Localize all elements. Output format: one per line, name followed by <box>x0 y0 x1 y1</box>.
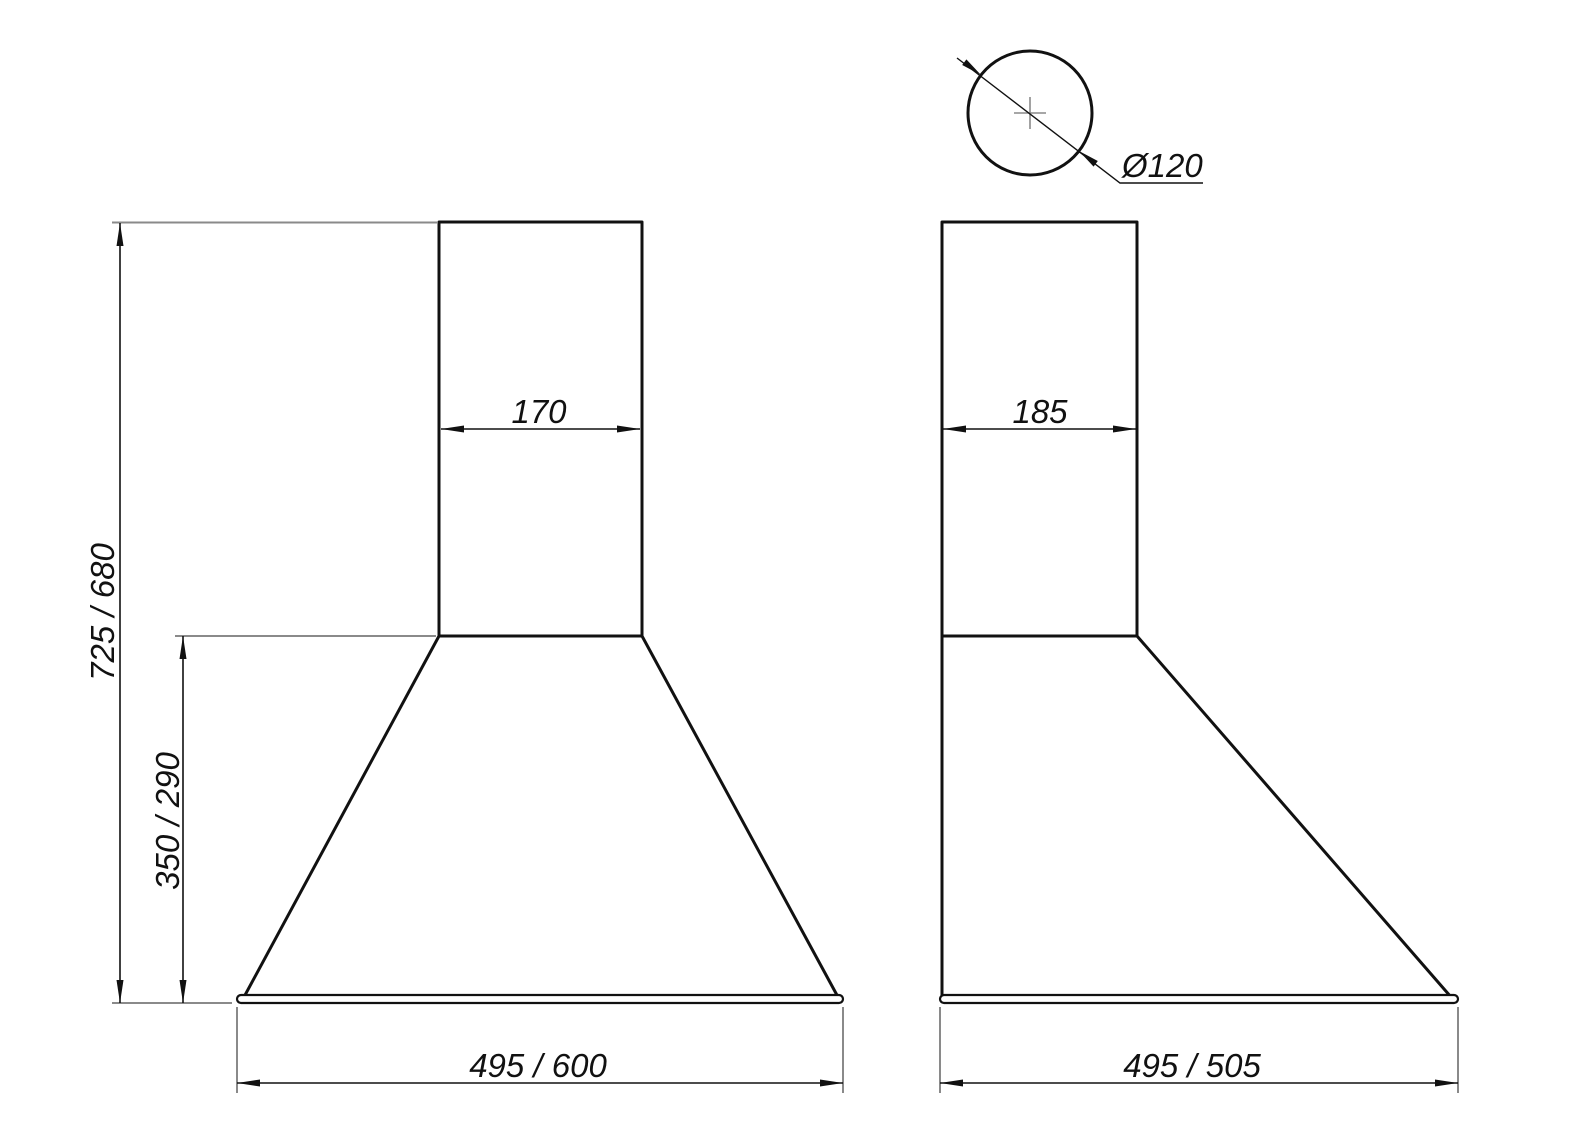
arrow-down-icon <box>117 980 124 1003</box>
front-hood-left-slope <box>244 636 439 997</box>
arrow-up-icon <box>180 636 187 659</box>
arrow-right-icon <box>617 426 640 433</box>
base-width-label: 495 / 600 <box>469 1047 607 1084</box>
dim-base-depth: 495 / 505 <box>940 1047 1458 1087</box>
center-cross-icon <box>1014 97 1046 129</box>
cooker-hood-dimension-drawing: Ø120 725 / 680 350 / 290 170 <box>0 0 1588 1123</box>
arrow-down-icon <box>180 980 187 1003</box>
arrow-up-icon <box>117 223 124 246</box>
front-view <box>237 222 843 1003</box>
front-hood-right-slope <box>642 636 838 997</box>
diameter-arrow-icon <box>1079 151 1098 167</box>
hood-height-label: 350 / 290 <box>149 752 186 890</box>
chimney-width-label: 170 <box>511 393 567 430</box>
extension-lines <box>112 223 1458 1094</box>
arrow-right-icon <box>1435 1080 1458 1087</box>
front-hood-bottom-rim <box>237 995 843 1003</box>
chimney-depth-label: 185 <box>1012 393 1068 430</box>
outlet-detail: Ø120 <box>957 51 1203 184</box>
outlet-diameter-label: Ø120 <box>1121 147 1203 184</box>
dim-chimney-depth: 185 <box>943 393 1136 433</box>
side-hood-bottom-rim <box>940 995 1458 1003</box>
arrow-left-icon <box>943 426 966 433</box>
arrow-left-icon <box>237 1080 260 1087</box>
dim-total-height: 725 / 680 <box>84 223 124 1003</box>
side-view <box>940 222 1458 1003</box>
drawing-canvas: Ø120 725 / 680 350 / 290 170 <box>0 0 1588 1123</box>
dim-hood-height: 350 / 290 <box>149 636 187 1003</box>
total-height-label: 725 / 680 <box>84 543 121 681</box>
side-body-outline <box>942 222 1451 997</box>
arrow-left-icon <box>940 1080 963 1087</box>
diameter-arrow-icon <box>962 59 981 75</box>
dim-chimney-width: 170 <box>441 393 640 433</box>
base-depth-label: 495 / 505 <box>1123 1047 1261 1084</box>
dim-base-width: 495 / 600 <box>237 1047 843 1087</box>
arrow-left-icon <box>441 426 464 433</box>
arrow-right-icon <box>820 1080 843 1087</box>
arrow-right-icon <box>1113 426 1136 433</box>
